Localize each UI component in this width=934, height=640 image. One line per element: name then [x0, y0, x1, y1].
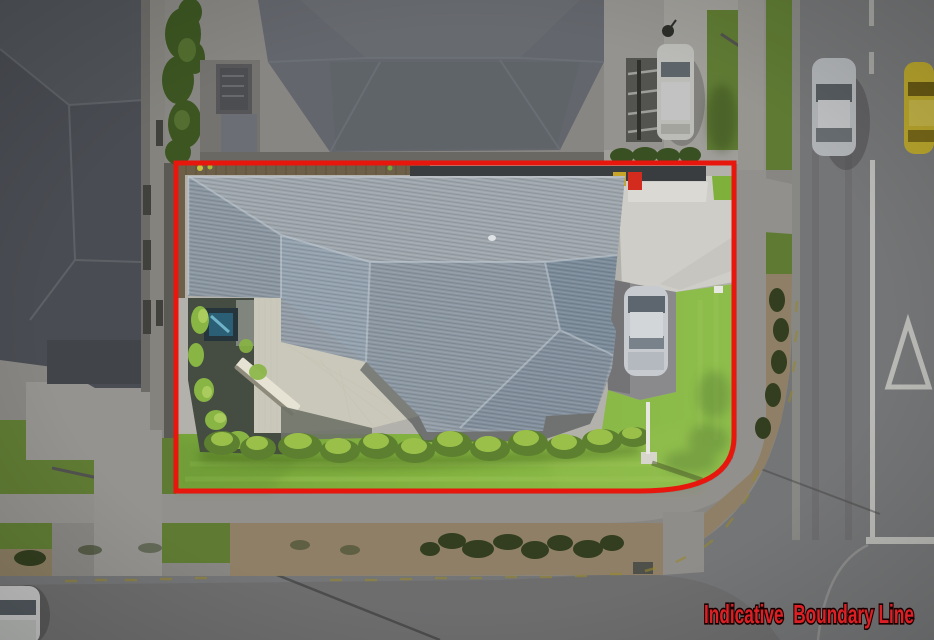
svg-text:Indicative Boundary Line: Indicative Boundary Line — [704, 599, 914, 629]
